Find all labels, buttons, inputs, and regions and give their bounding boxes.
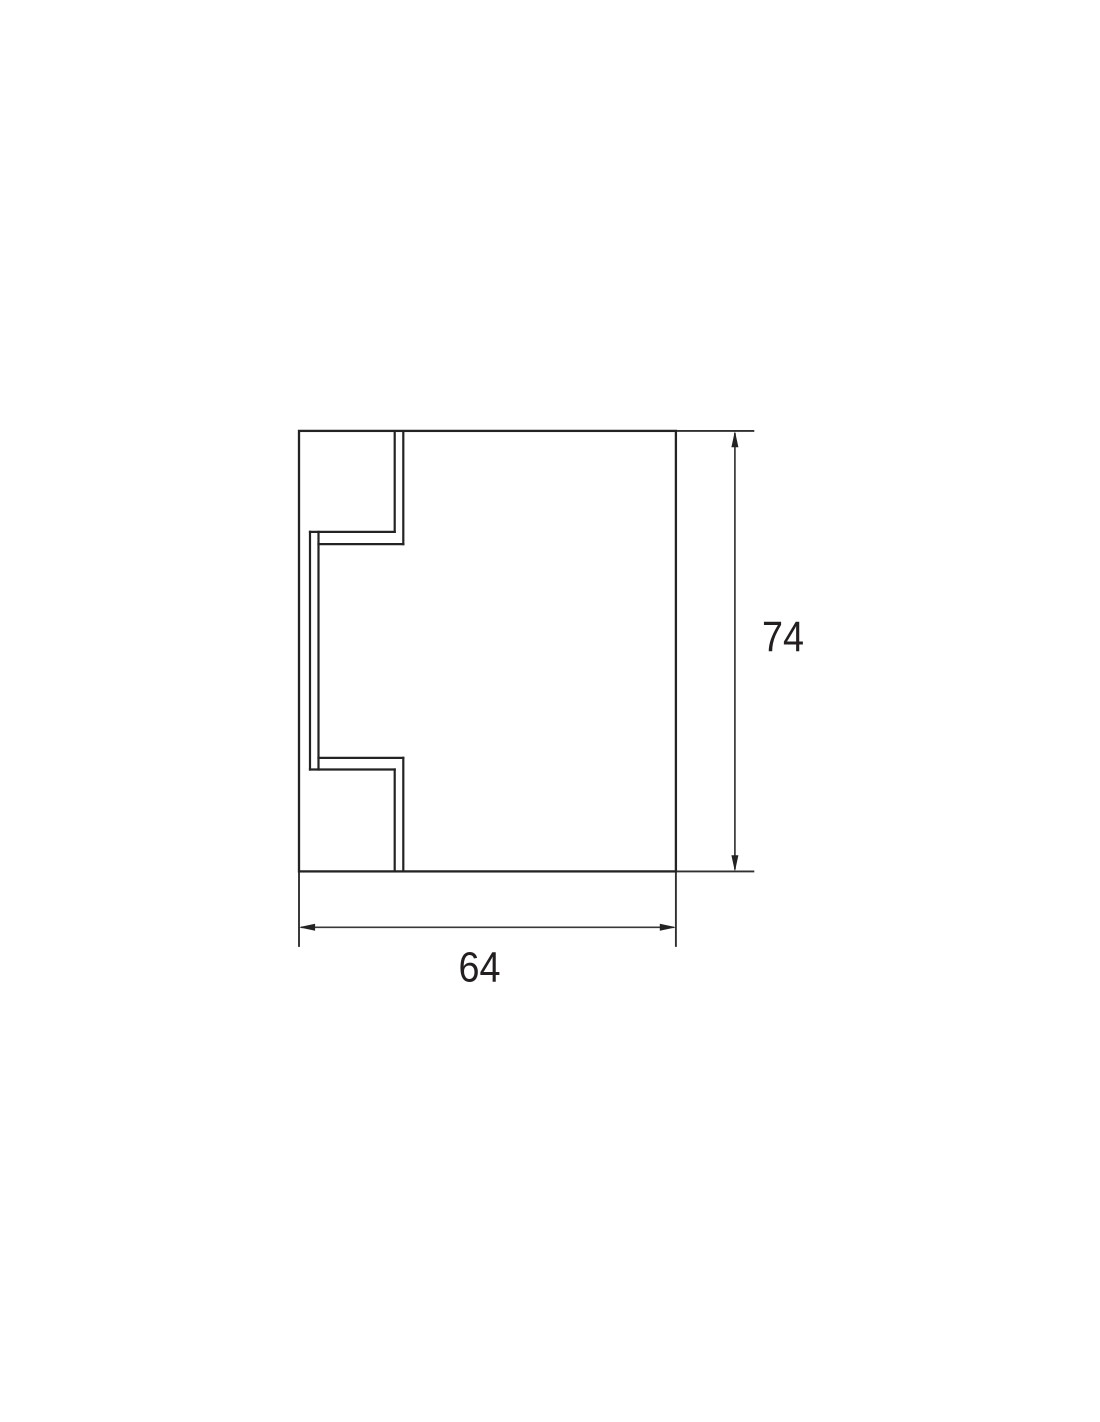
svg-text:74: 74: [762, 613, 804, 661]
svg-text:64: 64: [459, 944, 501, 992]
